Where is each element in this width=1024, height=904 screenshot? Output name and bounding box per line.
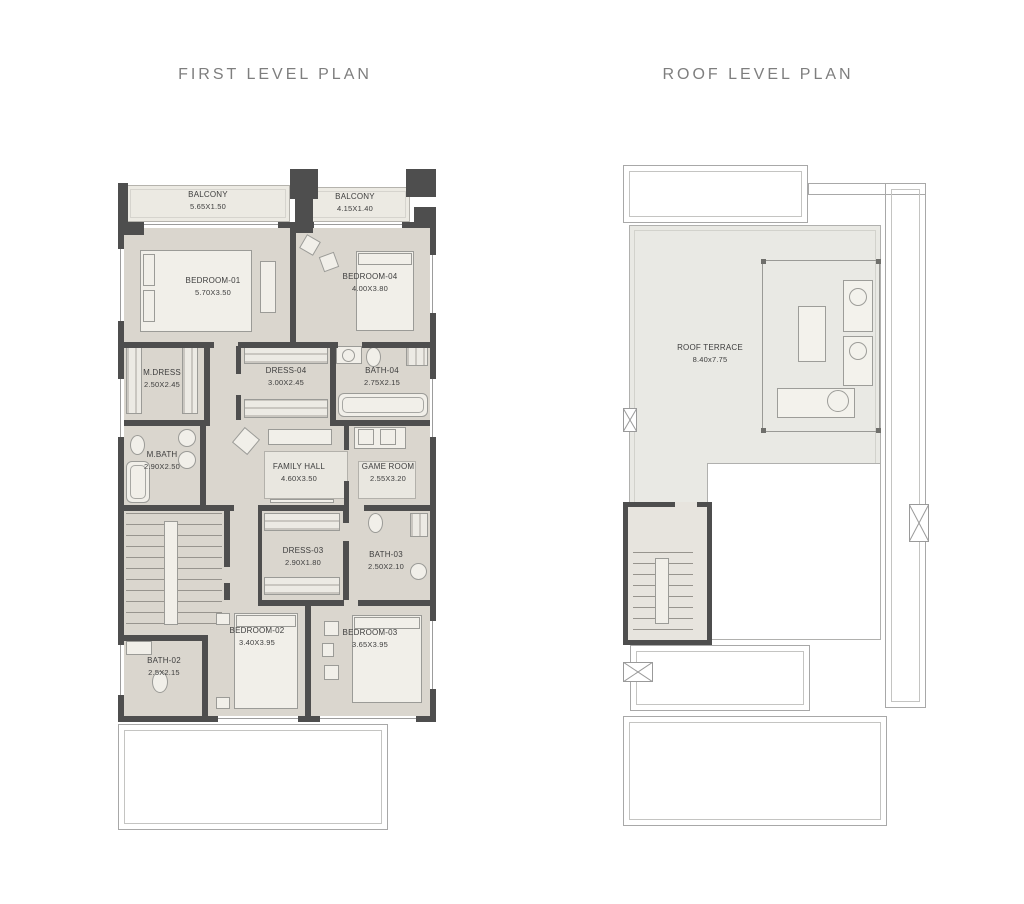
window xyxy=(430,255,436,313)
room-name: DRESS-04 xyxy=(241,365,331,377)
room-label-bath-02: BATH-02 2.5X2.15 xyxy=(119,655,209,678)
wall-segment xyxy=(406,169,436,197)
window xyxy=(320,716,416,722)
dresser xyxy=(260,261,276,313)
room-dims: 5.65X1.50 xyxy=(163,201,253,212)
room-dims: 2.90X2.50 xyxy=(117,461,207,472)
wardrobe xyxy=(264,577,340,595)
room-dims: 2.5X2.15 xyxy=(119,667,209,678)
room-label-bedroom-02: BEDROOM-02 3.40X3.95 xyxy=(212,625,302,648)
room-name: GAME ROOM xyxy=(343,461,433,473)
room-label-balcony-1: BALCONY 5.65X1.50 xyxy=(163,189,253,212)
outdoor-table xyxy=(798,306,826,362)
room-label-bedroom-04: BEDROOM-04 4.00X3.80 xyxy=(325,271,415,294)
room-label-m-bath: M.BATH 2.90X2.50 xyxy=(117,449,207,472)
stair-stringer xyxy=(164,521,178,625)
room-name: BATH-04 xyxy=(337,365,427,377)
wardrobe xyxy=(244,346,328,364)
wall-segment xyxy=(124,635,206,641)
nightstand xyxy=(216,697,230,709)
wall-segment xyxy=(258,505,344,511)
stair-stringer xyxy=(655,558,669,624)
wall-segment xyxy=(118,225,144,235)
room-name: M.DRESS xyxy=(117,367,207,379)
room-dims: 2.50X2.10 xyxy=(341,561,431,572)
vent-box-icon xyxy=(623,408,637,432)
room-label-bedroom-03: BEDROOM-03 3.65X3.95 xyxy=(325,627,415,650)
roof-void xyxy=(707,463,881,640)
tv-unit xyxy=(270,499,334,503)
window xyxy=(430,621,436,689)
room-name: FAMILY HALL xyxy=(254,461,344,473)
room-dims: 4.60X3.50 xyxy=(254,473,344,484)
room-name: BATH-02 xyxy=(119,655,209,667)
room-name: BEDROOM-04 xyxy=(325,271,415,283)
room-label-family-hall: FAMILY HALL 4.60X3.50 xyxy=(254,461,344,484)
pergola-post xyxy=(876,259,881,264)
wall-segment xyxy=(305,606,311,716)
pillow xyxy=(143,290,155,322)
pergola-post xyxy=(876,428,881,433)
room-name: BEDROOM-02 xyxy=(212,625,302,637)
window xyxy=(430,379,436,437)
roof-outline-right-inner xyxy=(891,189,920,702)
plot-outline-inner xyxy=(629,722,881,820)
cushion xyxy=(849,342,867,360)
plot-outline xyxy=(118,724,388,830)
toilet xyxy=(368,513,383,533)
room-dims: 3.65X3.95 xyxy=(325,639,415,650)
room-label-game-room: GAME ROOM 2.55X3.20 xyxy=(343,461,433,484)
room-label-bedroom-01: BEDROOM-01 5.70X3.50 xyxy=(168,275,258,298)
wall-segment xyxy=(290,228,296,342)
room-label-dress-04: DRESS-04 3.00X2.45 xyxy=(241,365,331,388)
wall-segment xyxy=(344,426,349,450)
cushion xyxy=(827,390,849,412)
window xyxy=(314,222,402,228)
room-name: BEDROOM-03 xyxy=(325,627,415,639)
window xyxy=(218,716,298,722)
wall-segment xyxy=(124,505,234,511)
room-label-m-dress: M.DRESS 2.50X2.45 xyxy=(117,367,207,390)
room-dims: 2.50X2.45 xyxy=(117,379,207,390)
room-name: BALCONY xyxy=(310,191,400,203)
vent-box-icon xyxy=(623,662,653,682)
wall-segment xyxy=(344,481,349,505)
roof-outline-mid-inner xyxy=(636,651,804,705)
pergola-post xyxy=(761,259,766,264)
wardrobe xyxy=(264,513,340,531)
toilet xyxy=(366,347,381,367)
plot-outline-inner xyxy=(124,730,382,824)
wall-segment xyxy=(414,207,436,225)
room-label-balcony-2: BALCONY 4.15X1.40 xyxy=(310,191,400,214)
wall-segment xyxy=(224,505,230,567)
room-name: BALCONY xyxy=(163,189,253,201)
pillow xyxy=(358,253,412,265)
bathtub-basin xyxy=(342,397,424,413)
roof-level-plan: ROOF TERRACE 8.40x7.75 xyxy=(615,160,945,850)
roof-outline-right xyxy=(885,183,926,708)
wall-segment xyxy=(362,342,430,348)
wall-segment xyxy=(236,395,241,420)
roof-level-title: ROOF LEVEL PLAN xyxy=(598,66,918,84)
room-name: ROOF TERRACE xyxy=(645,342,775,354)
room-name: DRESS-03 xyxy=(258,545,348,557)
wardrobe xyxy=(244,399,328,418)
pillow xyxy=(143,254,155,286)
room-dims: 5.70X3.50 xyxy=(168,287,258,298)
room-dims: 2.55X3.20 xyxy=(343,473,433,484)
shower xyxy=(406,346,428,366)
roof-outline-top-inner xyxy=(629,171,802,217)
first-level-title: FIRST LEVEL PLAN xyxy=(115,66,435,84)
room-label-roof-terrace: ROOF TERRACE 8.40x7.75 xyxy=(645,342,775,365)
chair xyxy=(324,665,339,680)
room-dims: 3.40X3.95 xyxy=(212,637,302,648)
wall-segment xyxy=(224,583,230,600)
cushion xyxy=(849,288,867,306)
room-dims: 4.15X1.40 xyxy=(310,203,400,214)
plot-outline xyxy=(623,716,887,826)
wall-segment xyxy=(343,505,349,523)
window xyxy=(144,222,278,228)
wall-segment xyxy=(238,342,338,348)
room-label-dress-03: DRESS-03 2.90X1.80 xyxy=(258,545,348,568)
sofa xyxy=(268,429,332,445)
wall-segment xyxy=(124,342,214,348)
wall-segment xyxy=(124,420,204,426)
wall-segment xyxy=(358,600,430,606)
room-dims: 3.00X2.45 xyxy=(241,377,331,388)
room-label-bath-04: BATH-04 2.75X2.15 xyxy=(337,365,427,388)
roof-outline-mid xyxy=(630,645,810,711)
sink xyxy=(178,429,196,447)
room-dims: 8.40x7.75 xyxy=(645,354,775,365)
wall-segment xyxy=(364,505,430,511)
roof-outline-top xyxy=(623,165,808,223)
vent-box-icon xyxy=(909,504,929,542)
bathtub xyxy=(338,393,428,417)
pergola-post xyxy=(761,428,766,433)
room-name: M.BATH xyxy=(117,449,207,461)
sink xyxy=(342,349,355,362)
room-dims: 2.75X2.15 xyxy=(337,377,427,388)
gaming-chair xyxy=(380,429,396,445)
shower xyxy=(410,513,428,537)
room-dims: 2.90X1.80 xyxy=(258,557,348,568)
nightstand xyxy=(216,613,230,625)
first-level-plan: BALCONY 5.65X1.50 BALCONY 4.15X1.40 BEDR… xyxy=(118,163,438,863)
gaming-chair xyxy=(358,429,374,445)
room-name: BATH-03 xyxy=(341,549,431,561)
sink-counter xyxy=(126,641,152,655)
window xyxy=(118,249,124,321)
room-name: BEDROOM-01 xyxy=(168,275,258,287)
stair-door-opening xyxy=(675,502,697,507)
room-label-bath-03: BATH-03 2.50X2.10 xyxy=(341,549,431,572)
wall-segment xyxy=(258,600,344,606)
room-dims: 4.00X3.80 xyxy=(325,283,415,294)
